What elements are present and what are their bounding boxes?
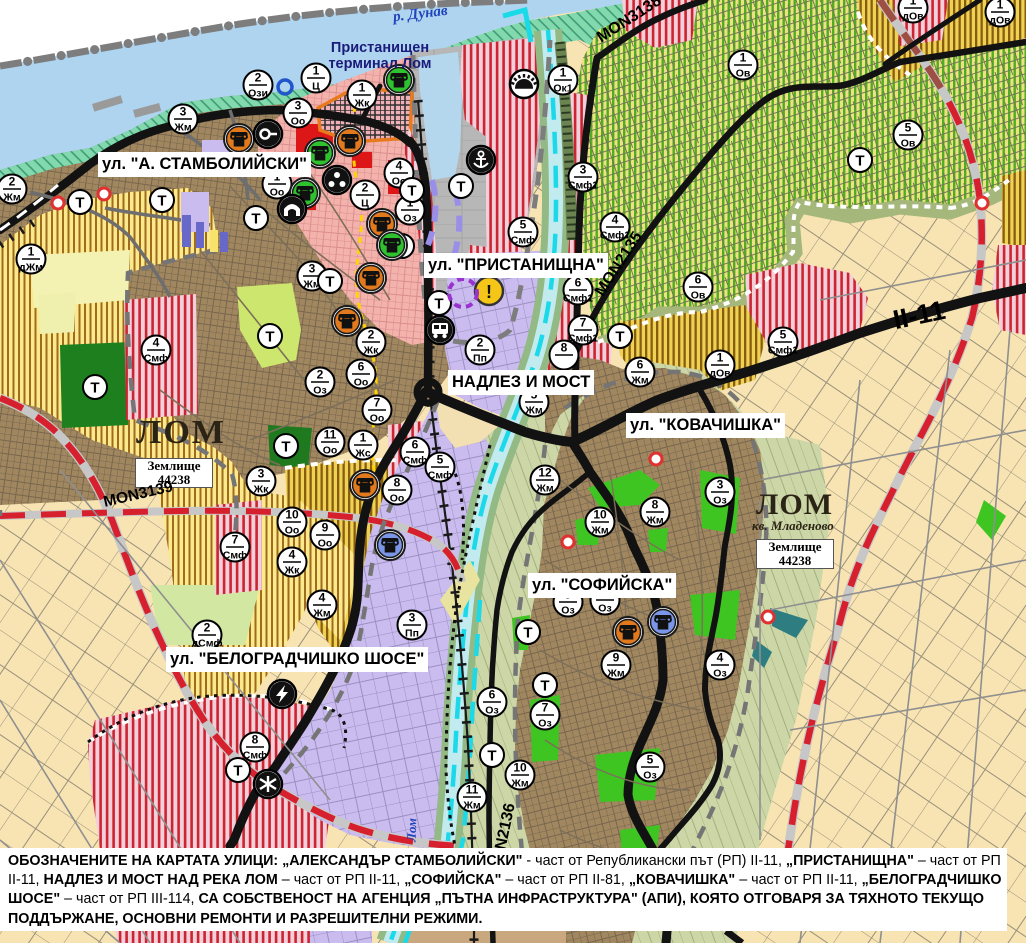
- svg-text:Жм: Жм: [524, 405, 542, 417]
- svg-text:5: 5: [647, 753, 654, 767]
- svg-text:Ов: Ов: [736, 68, 751, 80]
- svg-text:1: 1: [910, 0, 917, 8]
- svg-text:Смф: Смф: [511, 235, 535, 247]
- svg-text:Оо: Оо: [285, 525, 300, 537]
- svg-text:Т: Т: [855, 153, 864, 170]
- svg-text:Т: Т: [434, 296, 443, 313]
- svg-text:1: 1: [360, 431, 367, 445]
- svg-text:8: 8: [252, 733, 259, 747]
- svg-text:Оз: Оз: [713, 668, 726, 680]
- svg-text:2: 2: [204, 621, 211, 635]
- svg-text:7: 7: [232, 533, 239, 547]
- svg-text:6: 6: [489, 688, 496, 702]
- svg-text:10: 10: [285, 508, 299, 522]
- svg-text:Жм: Жм: [510, 778, 528, 790]
- svg-text:3: 3: [409, 611, 416, 625]
- svg-text:Оо: Оо: [370, 413, 385, 425]
- svg-text:Оз: Оз: [713, 495, 726, 507]
- svg-text:Т: Т: [540, 678, 549, 695]
- svg-text:Жм: Жм: [630, 375, 648, 387]
- svg-text:Смф1: Смф1: [563, 293, 593, 305]
- svg-text:Жм: Жм: [2, 192, 20, 204]
- svg-text:дОв: дОв: [989, 15, 1011, 27]
- svg-text:Т: Т: [281, 439, 290, 456]
- svg-text:Смф: Смф: [243, 750, 267, 762]
- svg-text:Жм: Жм: [645, 515, 663, 527]
- svg-text:2: 2: [9, 175, 16, 189]
- svg-text:дЖм: дЖм: [19, 262, 43, 274]
- svg-text:Пп: Пп: [405, 628, 419, 640]
- svg-text:1: 1: [28, 245, 35, 259]
- svg-text:Пп: Пп: [473, 353, 487, 365]
- svg-text:Т: Т: [523, 625, 532, 642]
- svg-text:Оз: Оз: [598, 603, 611, 615]
- svg-text:Т: Т: [90, 380, 99, 397]
- svg-text:1: 1: [740, 51, 747, 65]
- svg-text:4: 4: [153, 336, 160, 350]
- svg-text:Т: Т: [456, 179, 465, 196]
- svg-text:6: 6: [358, 360, 365, 374]
- svg-text:10: 10: [593, 508, 607, 522]
- svg-text:Жк: Жк: [363, 345, 379, 357]
- svg-text:2: 2: [368, 328, 375, 342]
- svg-text:9: 9: [613, 651, 620, 665]
- svg-text:Жм: Жм: [462, 800, 480, 812]
- svg-text:Ц: Ц: [361, 198, 369, 210]
- svg-text:Оз: Оз: [538, 718, 551, 730]
- svg-text:дОв: дОв: [709, 368, 731, 380]
- svg-text:Т: Т: [251, 211, 260, 228]
- svg-text:Оз: Оз: [485, 705, 498, 717]
- svg-text:Т: Т: [325, 274, 334, 291]
- svg-text:Т: Т: [407, 183, 416, 200]
- svg-text:3: 3: [258, 467, 265, 481]
- svg-text:дОв: дОв: [902, 11, 924, 23]
- svg-text:Оз: Оз: [313, 385, 326, 397]
- svg-text:Смф: Смф: [223, 550, 247, 562]
- svg-text:2: 2: [317, 368, 324, 382]
- svg-text:Жк: Жк: [253, 484, 269, 496]
- svg-text:11: 11: [324, 428, 337, 442]
- svg-text:Оо: Оо: [270, 187, 285, 199]
- svg-text:2: 2: [362, 181, 369, 195]
- svg-text:Жм: Жм: [606, 668, 624, 680]
- svg-text:Смф: Смф: [403, 455, 427, 467]
- svg-text:6: 6: [637, 358, 644, 372]
- svg-text:4: 4: [319, 591, 326, 605]
- svg-text:11: 11: [466, 783, 479, 797]
- svg-text:1: 1: [359, 81, 366, 95]
- svg-text:1: 1: [717, 351, 724, 365]
- svg-text:3: 3: [309, 262, 316, 276]
- svg-text:Оз: Оз: [643, 770, 656, 782]
- svg-text:3: 3: [180, 105, 187, 119]
- svg-text:4: 4: [396, 159, 403, 173]
- svg-text:Смф: Смф: [428, 470, 452, 482]
- svg-text:1: 1: [997, 0, 1004, 12]
- svg-text:4: 4: [612, 213, 619, 227]
- svg-text:2: 2: [477, 336, 484, 350]
- svg-text:Оо: Оо: [390, 493, 405, 505]
- svg-text:3: 3: [295, 99, 302, 113]
- svg-text:12: 12: [538, 466, 552, 480]
- svg-text:Т: Т: [157, 193, 166, 210]
- svg-text:Ов: Ов: [691, 290, 706, 302]
- svg-text:Т: Т: [75, 195, 84, 212]
- svg-text:Смф1: Смф1: [768, 345, 798, 357]
- svg-text:7: 7: [580, 316, 587, 330]
- svg-text:Оо: Оо: [318, 538, 333, 550]
- svg-text:8: 8: [652, 498, 659, 512]
- svg-text:7: 7: [542, 701, 549, 715]
- svg-text:Ов: Ов: [901, 138, 916, 150]
- svg-text:8: 8: [394, 476, 401, 490]
- svg-text:6: 6: [412, 438, 419, 452]
- svg-text:Жс: Жс: [354, 448, 370, 460]
- svg-text:Жм: Жм: [590, 525, 608, 537]
- svg-text:Ок1: Ок1: [553, 83, 572, 95]
- svg-text:Ц: Ц: [312, 81, 320, 93]
- svg-text:Смф: Смф: [144, 353, 168, 365]
- svg-text:Оо: Оо: [291, 116, 306, 128]
- svg-text:Т: Т: [615, 329, 624, 346]
- svg-text:Оз: Оз: [403, 213, 416, 225]
- svg-text:5: 5: [437, 453, 444, 467]
- svg-text:5: 5: [520, 218, 527, 232]
- svg-text:Смф1: Смф1: [568, 180, 598, 192]
- svg-text:6: 6: [695, 273, 702, 287]
- svg-text:4: 4: [289, 548, 296, 562]
- svg-text:Жм: Жм: [173, 122, 191, 134]
- svg-text:3: 3: [717, 478, 724, 492]
- svg-text:Оз: Оз: [561, 605, 574, 617]
- svg-text:Жм: Жм: [312, 608, 330, 620]
- svg-text:!: !: [486, 282, 492, 302]
- svg-text:Оо: Оо: [354, 377, 369, 389]
- svg-text:9: 9: [322, 521, 329, 535]
- svg-text:7: 7: [374, 396, 381, 410]
- svg-text:Т: Т: [265, 329, 274, 346]
- svg-text:4: 4: [717, 651, 724, 665]
- svg-text:Жк: Жк: [354, 98, 370, 110]
- svg-text:Жк: Жк: [284, 565, 300, 577]
- svg-text:5: 5: [905, 121, 912, 135]
- svg-text:Т: Т: [233, 763, 242, 780]
- svg-text:Жм: Жм: [535, 483, 553, 495]
- svg-text:1: 1: [560, 66, 567, 80]
- svg-text:8: 8: [561, 341, 568, 355]
- svg-text:Т: Т: [487, 748, 496, 765]
- svg-text:5: 5: [780, 328, 787, 342]
- svg-text:Оо: Оо: [323, 445, 338, 457]
- svg-text:3: 3: [580, 163, 587, 177]
- svg-text:Ози: Ози: [248, 88, 268, 100]
- svg-text:2: 2: [255, 71, 262, 85]
- svg-text:10: 10: [513, 761, 527, 775]
